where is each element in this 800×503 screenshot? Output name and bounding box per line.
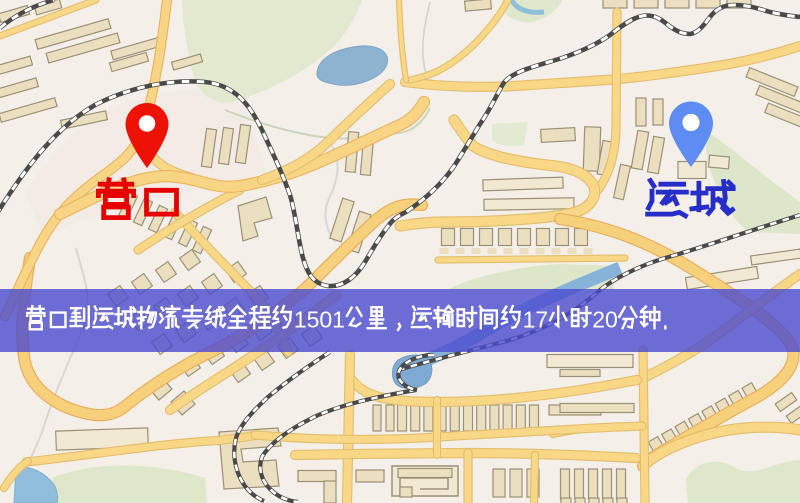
svg-text:20: 20 [592, 306, 618, 332]
svg-text:1501: 1501 [294, 306, 345, 332]
svg-text:17: 17 [523, 306, 549, 332]
